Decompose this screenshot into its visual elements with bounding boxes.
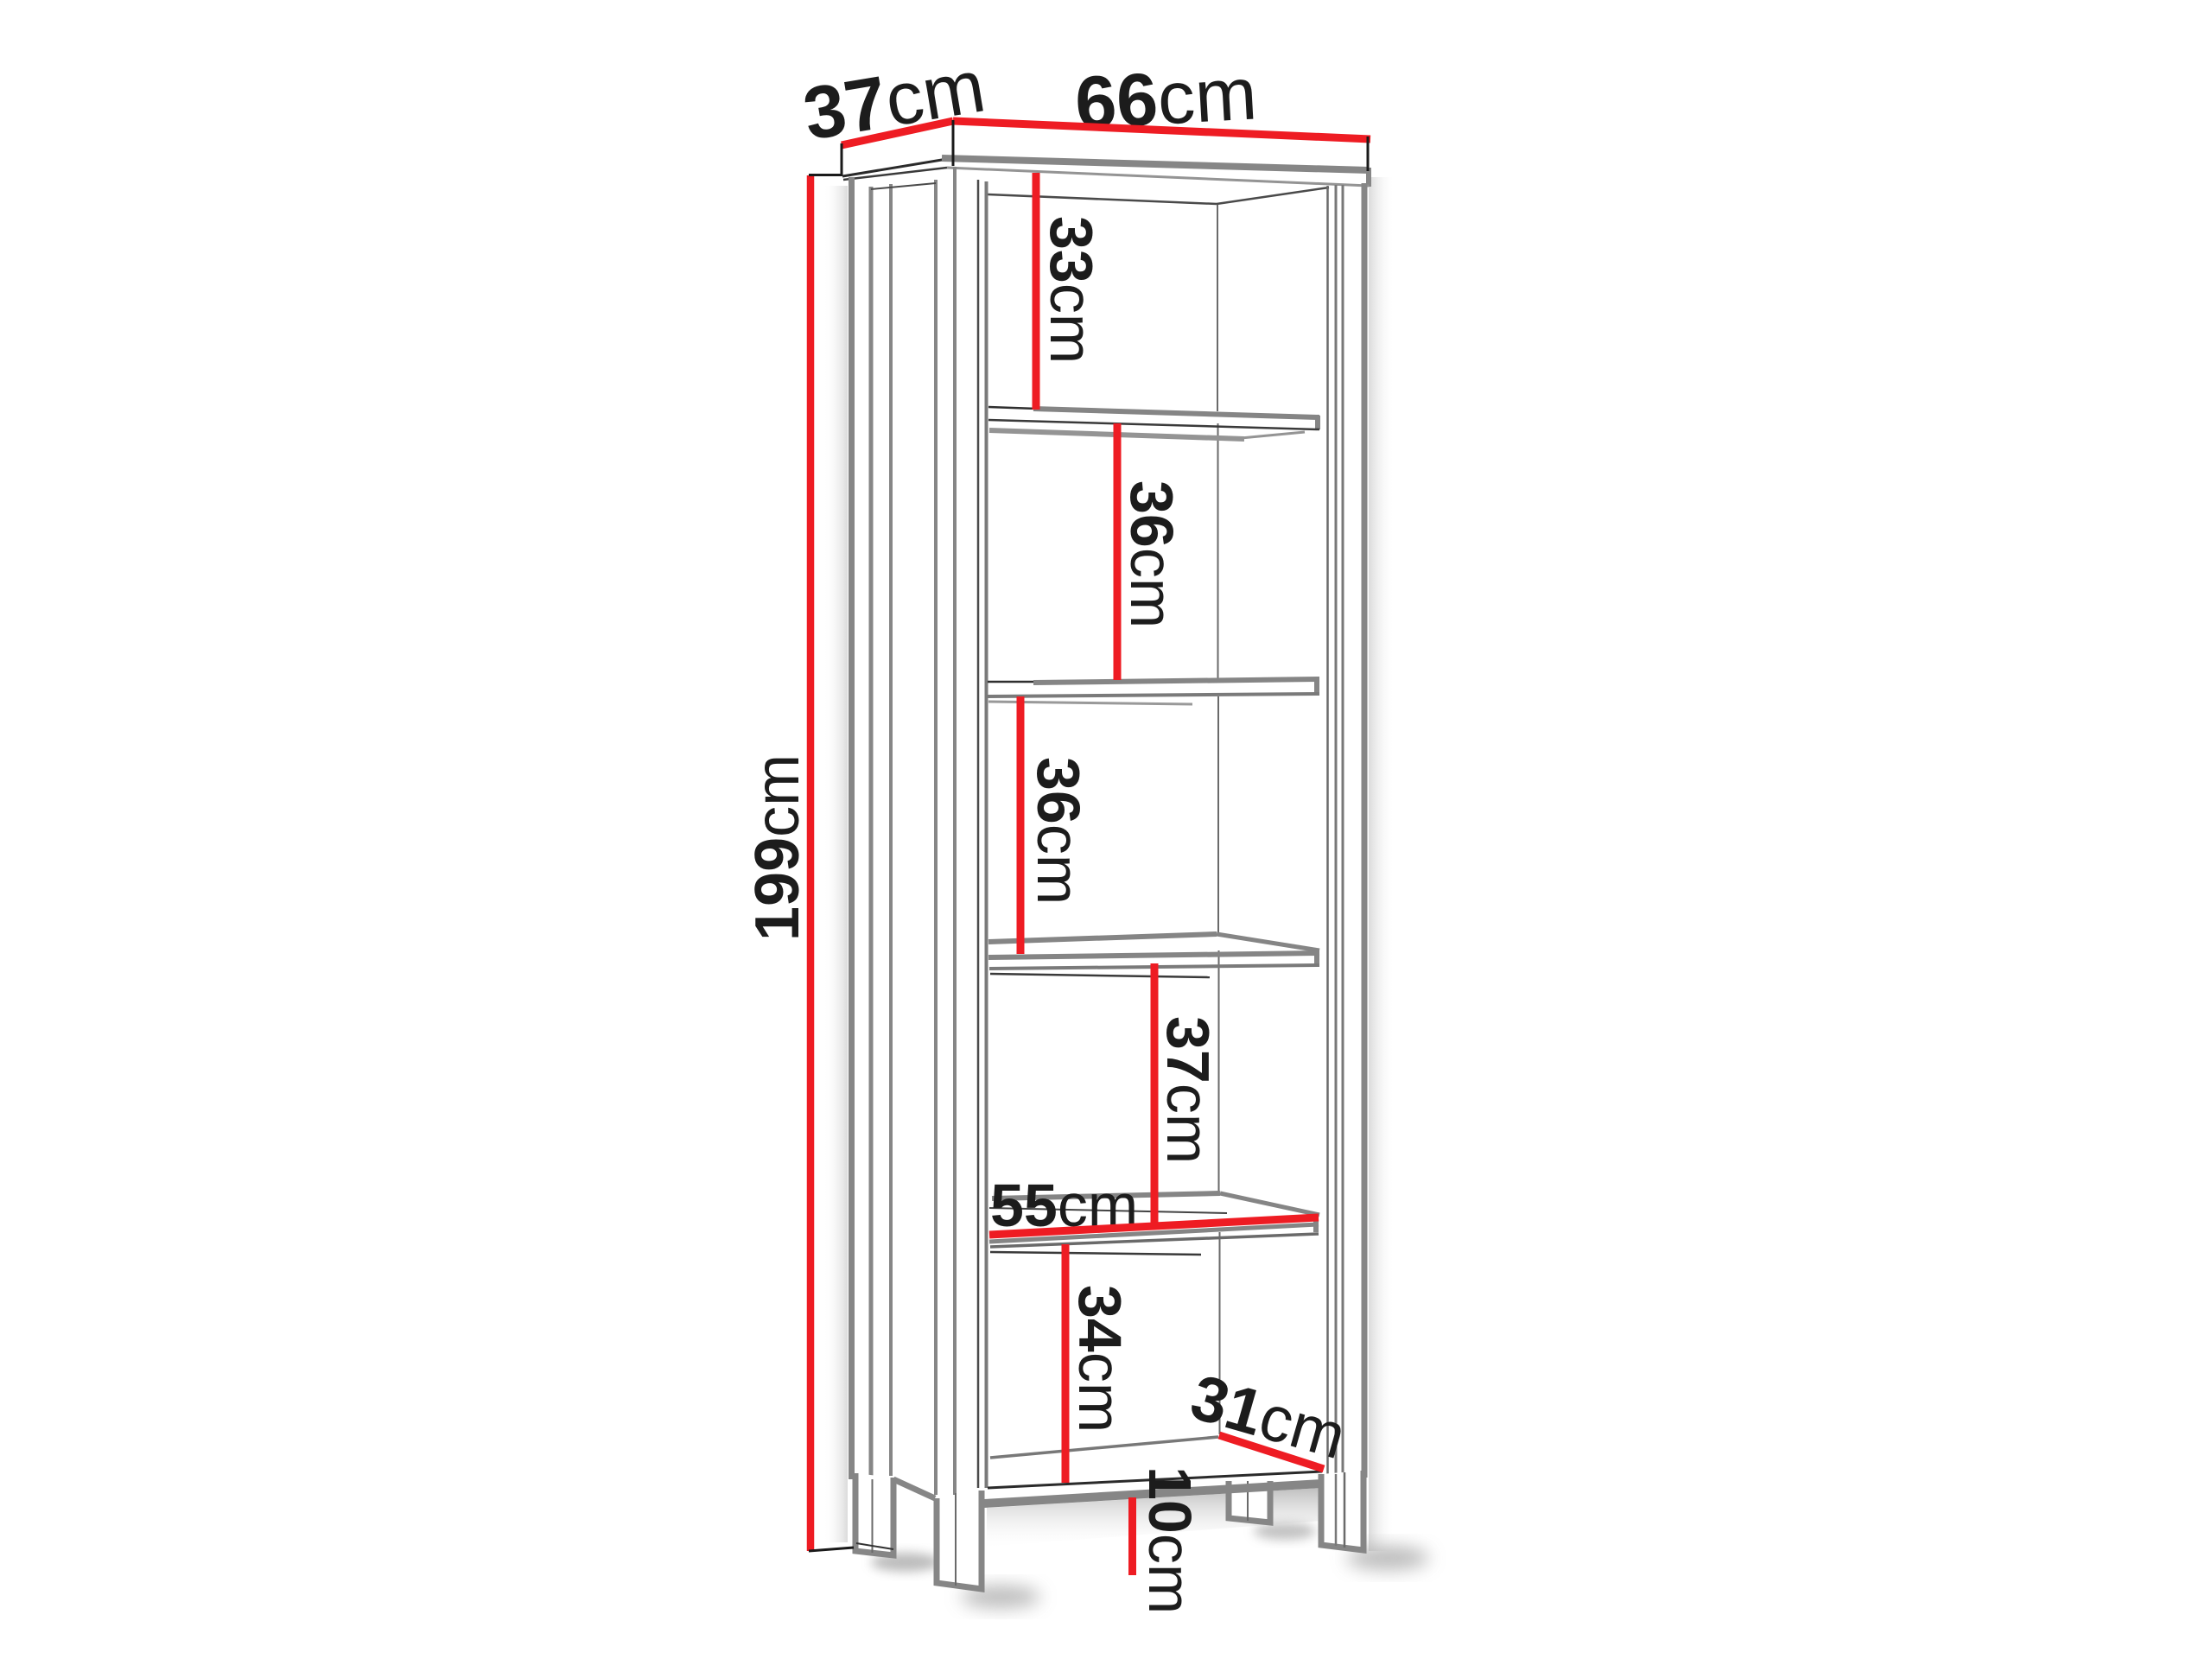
svg-text:36cm: 36cm <box>1025 757 1092 905</box>
svg-text:199cm: 199cm <box>743 754 812 941</box>
svg-text:10cm: 10cm <box>1136 1466 1204 1614</box>
svg-text:37cm: 37cm <box>1154 1016 1222 1164</box>
svg-text:33cm: 33cm <box>1038 216 1105 364</box>
svg-text:36cm: 36cm <box>1118 480 1185 628</box>
svg-text:34cm: 34cm <box>1066 1285 1134 1433</box>
